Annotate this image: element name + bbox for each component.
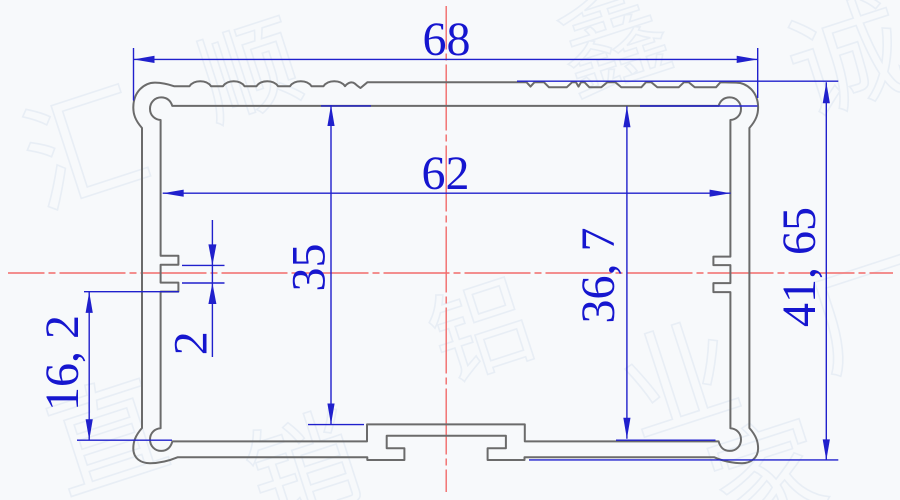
svg-text:41, 65: 41, 65 — [773, 207, 826, 327]
svg-text:2: 2 — [165, 331, 218, 355]
svg-text:36, 7: 36, 7 — [572, 228, 625, 324]
svg-text:62: 62 — [422, 147, 470, 200]
svg-text:35: 35 — [282, 244, 335, 292]
svg-text:68: 68 — [423, 13, 471, 66]
svg-text:16, 2: 16, 2 — [36, 315, 89, 411]
